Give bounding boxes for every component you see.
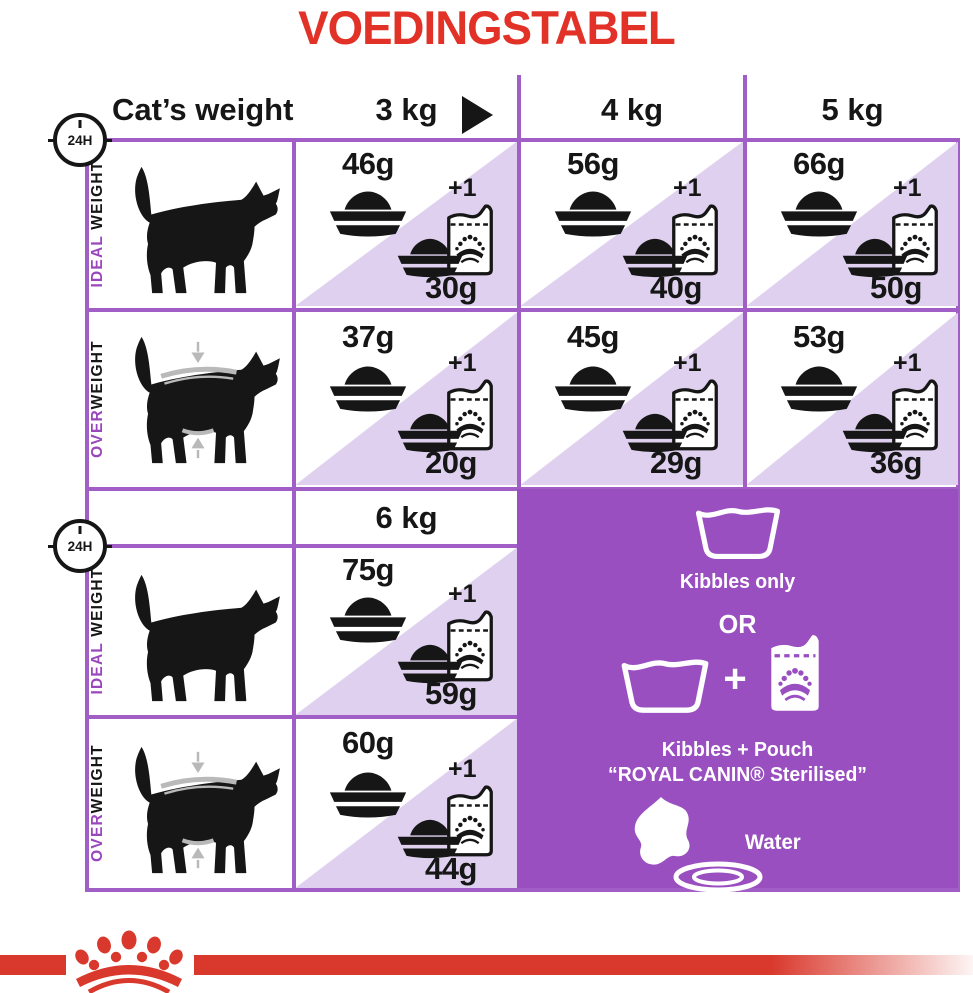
- plus-one-label: +1: [448, 174, 477, 203]
- clock-label: 24H: [68, 133, 93, 148]
- grid-line: [85, 308, 960, 312]
- clock-label: 24H: [68, 539, 93, 554]
- kibbles-amount: 53g: [759, 319, 879, 355]
- column-header-6kg: 6 kg: [296, 500, 517, 536]
- brand-band: [194, 955, 973, 975]
- pouch-white-icon: [763, 631, 827, 715]
- feeding-table-page: VOEDINGSTABEL Cat’s weight 3 kg 4 kg 5 k…: [0, 0, 973, 993]
- cell-ideal-6kg: 75g +1 59g: [296, 548, 517, 715]
- bowl-icon: [324, 769, 412, 821]
- plus-one-label: +1: [893, 349, 922, 378]
- bowl-icon: [324, 594, 412, 646]
- bowl-icon: [775, 188, 863, 240]
- bowl-icon: [549, 188, 637, 240]
- or-label: OR: [524, 609, 952, 640]
- info-panel-content: Kibbles only OR + Kibbles + Pouch “ROYAL…: [517, 489, 958, 888]
- kibbles-pouch-label: Kibbles + Pouch: [524, 739, 952, 762]
- bowl-icon: [324, 188, 412, 240]
- clock-tick: [103, 139, 112, 142]
- bowl-outline-icon: [615, 653, 715, 717]
- overweight-cat-icon: [112, 736, 284, 884]
- cell-over-3kg: 37g +1 20g: [296, 313, 517, 485]
- column-header-4kg: 4 kg: [521, 92, 743, 128]
- plus-one-label: +1: [673, 349, 702, 378]
- cell-over-4kg: 45g +1 29g: [521, 313, 743, 485]
- cell-ideal-3kg: 46g +1 30g: [296, 142, 517, 306]
- plus-icon: +: [715, 657, 755, 702]
- kibbles-amount: 37g: [308, 319, 428, 355]
- royal-canin-sterilised-label: “ROYAL CANIN® Sterilised”: [524, 764, 952, 787]
- ideal-cat-icon: [112, 156, 284, 304]
- mix-amount: 44g: [396, 851, 506, 887]
- cats-weight-label: Cat’s weight: [112, 92, 293, 128]
- bowl-outline-icon: [690, 501, 786, 563]
- mix-amount: 50g: [841, 270, 951, 306]
- column-header-3kg: 3 kg: [296, 92, 517, 128]
- ideal-cat-icon: [112, 564, 284, 712]
- mix-amount: 30g: [396, 270, 506, 306]
- mix-amount: 20g: [396, 445, 506, 481]
- row-label-overweight: OVERWEIGHT: [89, 713, 111, 893]
- header-divider: [517, 75, 521, 141]
- 24h-clock-icon: 24H: [53, 113, 107, 167]
- plus-one-label: +1: [448, 349, 477, 378]
- mix-amount: 29g: [621, 445, 731, 481]
- bowl-icon: [775, 363, 863, 415]
- plus-one-label: +1: [893, 174, 922, 203]
- plus-one-label: +1: [673, 174, 702, 203]
- page-title: VOEDINGSTABEL: [15, 0, 959, 55]
- kibbles-amount: 60g: [308, 725, 428, 761]
- kibbles-only-label: Kibbles only: [524, 571, 952, 594]
- cell-over-6kg: 60g +1 44g: [296, 719, 517, 888]
- bowl-icon: [324, 363, 412, 415]
- row-label-overweight: OVERWEIGHT: [89, 309, 111, 489]
- header-divider: [743, 75, 747, 141]
- 24h-clock-icon: 24H: [53, 519, 107, 573]
- column-header-5kg: 5 kg: [747, 92, 958, 128]
- water-label: Water: [745, 831, 801, 855]
- brand-band: [0, 955, 66, 975]
- cell-over-5kg: 53g +1 36g: [747, 313, 958, 485]
- kibbles-amount: 56g: [533, 146, 653, 182]
- kibbles-amount: 75g: [308, 552, 428, 588]
- mix-amount: 40g: [621, 270, 731, 306]
- clock-tick: [103, 545, 112, 548]
- kibbles-amount: 66g: [759, 146, 879, 182]
- clock-tick: [48, 139, 57, 142]
- cell-ideal-5kg: 66g +1 50g: [747, 142, 958, 306]
- kibbles-amount: 45g: [533, 319, 653, 355]
- royal-canin-crown-logo: [62, 929, 196, 993]
- mix-amount: 59g: [396, 676, 506, 712]
- bowl-icon: [549, 363, 637, 415]
- kibbles-amount: 46g: [308, 146, 428, 182]
- plus-one-label: +1: [448, 755, 477, 784]
- clock-tick: [48, 545, 57, 548]
- mix-amount: 36g: [841, 445, 951, 481]
- overweight-cat-icon: [112, 326, 284, 474]
- cell-ideal-4kg: 56g +1 40g: [521, 142, 743, 306]
- plus-one-label: +1: [448, 580, 477, 609]
